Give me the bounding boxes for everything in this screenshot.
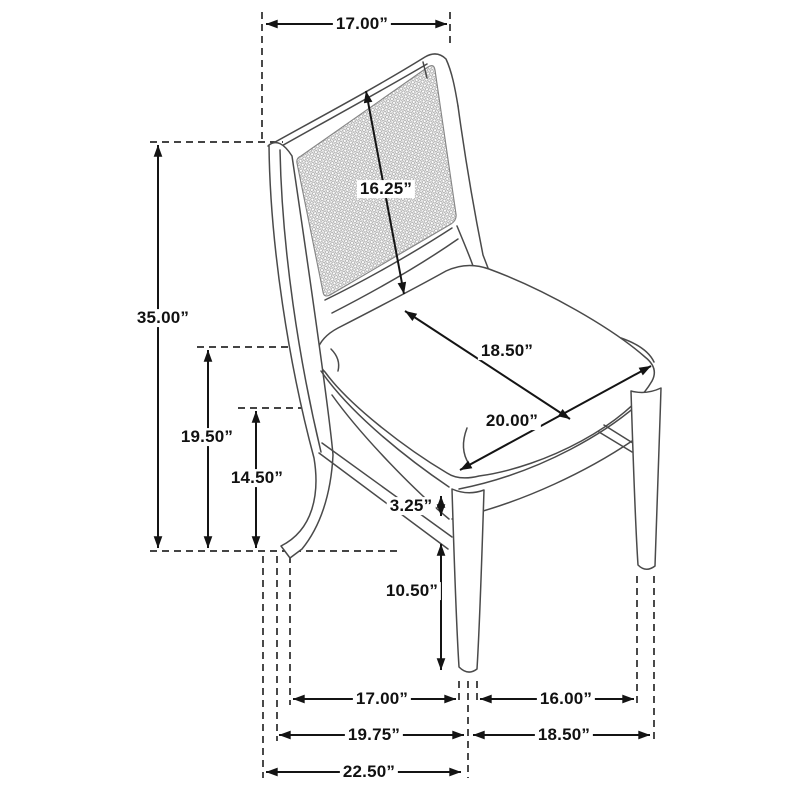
chair-illustration bbox=[268, 54, 661, 672]
dim-front-leg-width-label: 16.00” bbox=[537, 690, 595, 708]
dim-seat-rail-thickness-label: 3.25” bbox=[387, 497, 436, 515]
dim-seat-width-label: 20.00” bbox=[483, 412, 541, 430]
chair-dimension-diagram: 17.00” 35.00” 16.25” 18.50” 20.00” 19.50… bbox=[0, 0, 800, 800]
front-right-leg bbox=[631, 388, 661, 569]
dim-seat-height-label: 19.50” bbox=[178, 428, 236, 446]
dim-back-width-label: 17.00” bbox=[333, 15, 391, 33]
dim-frame-height-label: 14.50” bbox=[228, 469, 286, 487]
dim-overall-height-label: 35.00” bbox=[134, 309, 192, 327]
chair-dimension-drawing bbox=[0, 0, 800, 800]
dim-leg-span-side-label: 17.00” bbox=[353, 690, 411, 708]
seat-cushion bbox=[316, 265, 654, 477]
dim-seat-depth-label: 18.50” bbox=[478, 342, 536, 360]
dim-overall-depth-label: 22.50” bbox=[340, 763, 398, 781]
dim-leg-height-label: 10.50” bbox=[383, 582, 441, 600]
front-left-leg bbox=[452, 489, 484, 672]
dim-base-depth-label: 19.75” bbox=[345, 726, 403, 744]
dim-back-panel-height-label: 16.25” bbox=[357, 180, 415, 198]
dim-base-width-label: 18.50” bbox=[535, 726, 593, 744]
